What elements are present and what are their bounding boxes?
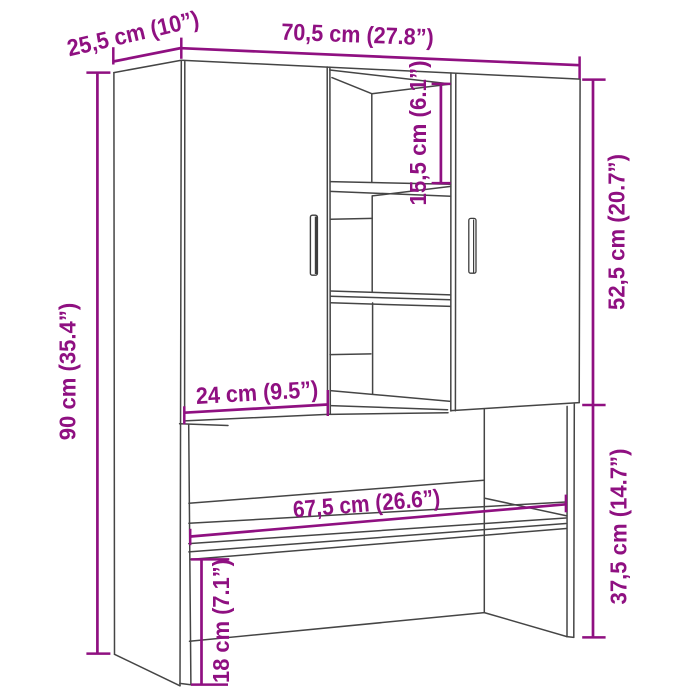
svg-text:18 cm (7.1”): 18 cm (7.1”) <box>207 559 234 683</box>
svg-text:15,5 cm (6.1”): 15,5 cm (6.1”) <box>404 60 431 205</box>
svg-text:37,5 cm (14.7”): 37,5 cm (14.7”) <box>605 449 632 605</box>
svg-text:90 cm (35.4”): 90 cm (35.4”) <box>54 303 81 440</box>
svg-text:52,5 cm (20.7”): 52,5 cm (20.7”) <box>603 154 630 310</box>
